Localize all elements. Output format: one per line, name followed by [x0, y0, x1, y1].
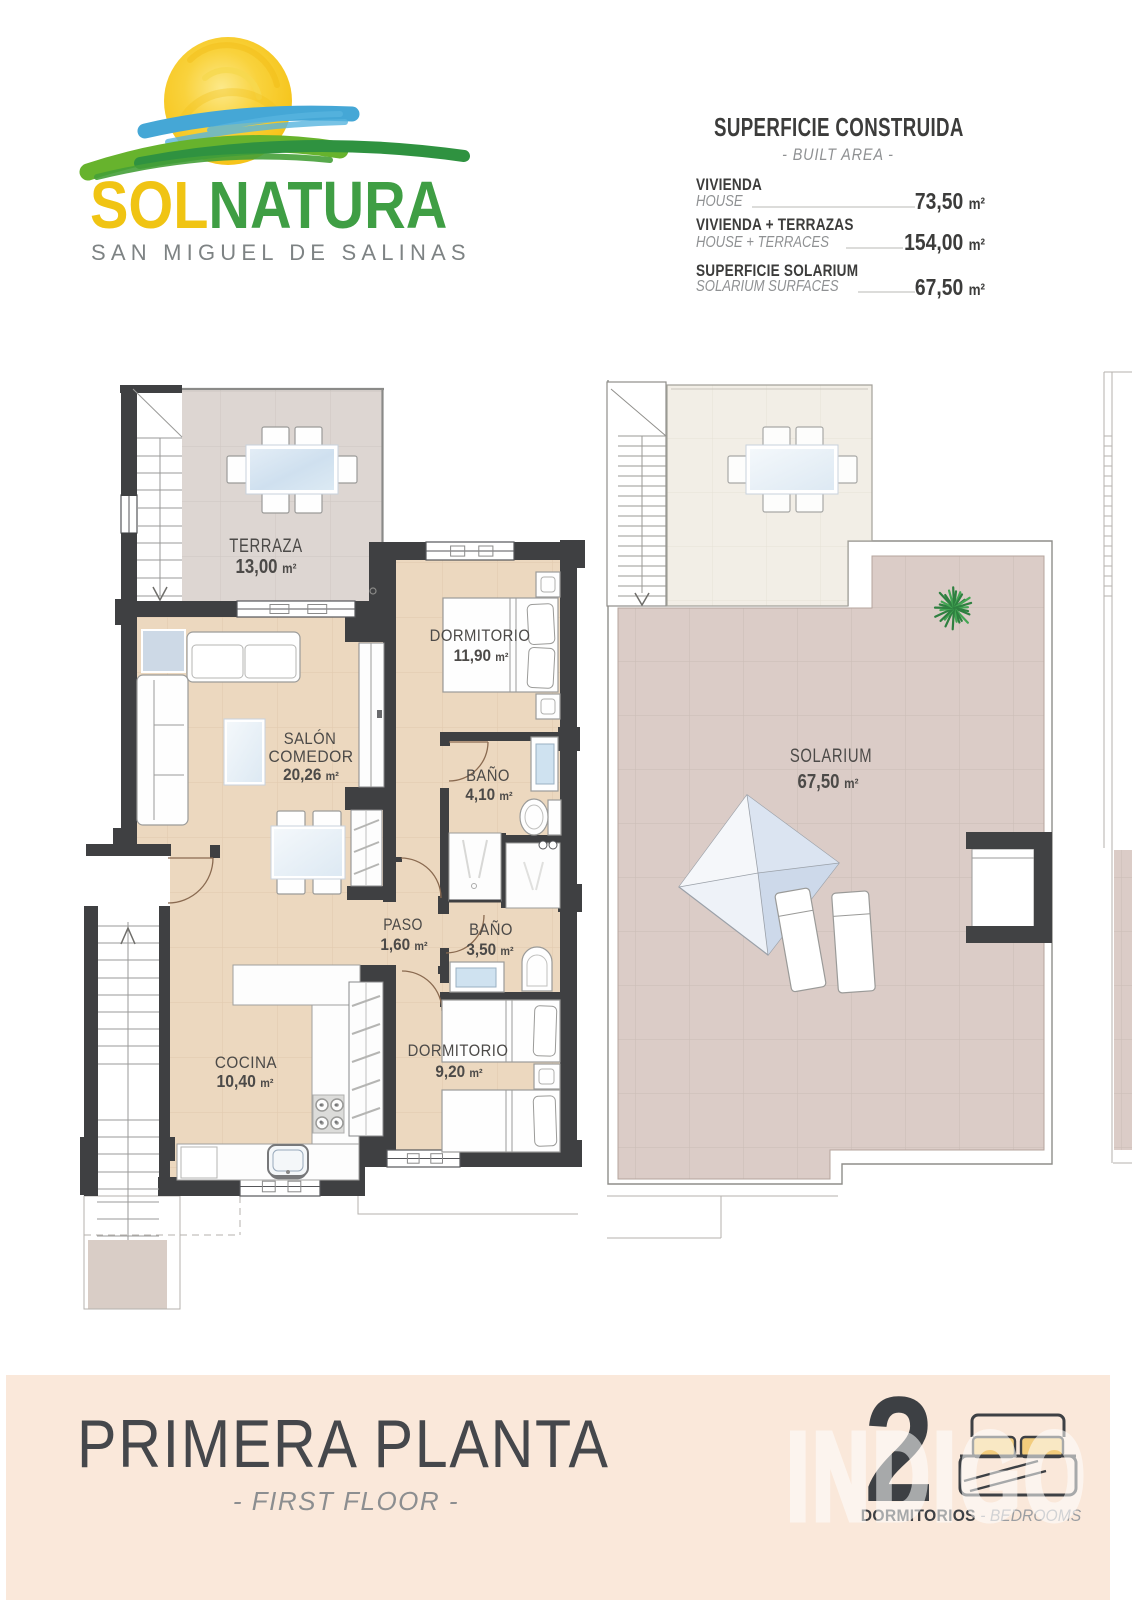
svg-text:BAÑO: BAÑO	[466, 764, 510, 785]
svg-text:HOUSE + TERRACES: HOUSE + TERRACES	[696, 234, 829, 251]
svg-text:SUPERFICIE CONSTRUIDA: SUPERFICIE CONSTRUIDA	[714, 112, 964, 142]
svg-text:TERRAZA: TERRAZA	[229, 535, 302, 556]
svg-text:HOUSE: HOUSE	[696, 193, 743, 210]
svg-text:DORMITORIO: DORMITORIO	[430, 627, 531, 645]
svg-text:- BUILT AREA -: - BUILT AREA -	[782, 146, 894, 164]
svg-text:DORMITORIO: DORMITORIO	[408, 1042, 509, 1060]
svg-text:SALÓN: SALÓN	[284, 728, 337, 748]
svg-text:PASO: PASO	[383, 916, 423, 934]
svg-text:SAN MIGUEL DE SALINAS: SAN MIGUEL DE SALINAS	[91, 240, 471, 265]
svg-text:COCINA: COCINA	[215, 1053, 277, 1072]
svg-text:BAÑO: BAÑO	[469, 918, 513, 939]
svg-text:COMEDOR: COMEDOR	[268, 748, 353, 766]
svg-text:PRIMERA PLANTA: PRIMERA PLANTA	[77, 1405, 610, 1482]
svg-text:SOLARIUM: SOLARIUM	[790, 745, 872, 766]
svg-text:- FIRST FLOOR -: - FIRST FLOOR -	[233, 1486, 459, 1516]
svg-text:SOLARIUM SURFACES: SOLARIUM SURFACES	[696, 278, 839, 295]
svg-text:VIVIENDA: VIVIENDA	[696, 176, 762, 195]
svg-text:INDIGO: INDIGO	[787, 1408, 1089, 1546]
svg-text:SOLNATURA: SOLNATURA	[90, 168, 447, 243]
svg-text:VIVIENDA + TERRAZAS: VIVIENDA + TERRAZAS	[696, 216, 854, 235]
